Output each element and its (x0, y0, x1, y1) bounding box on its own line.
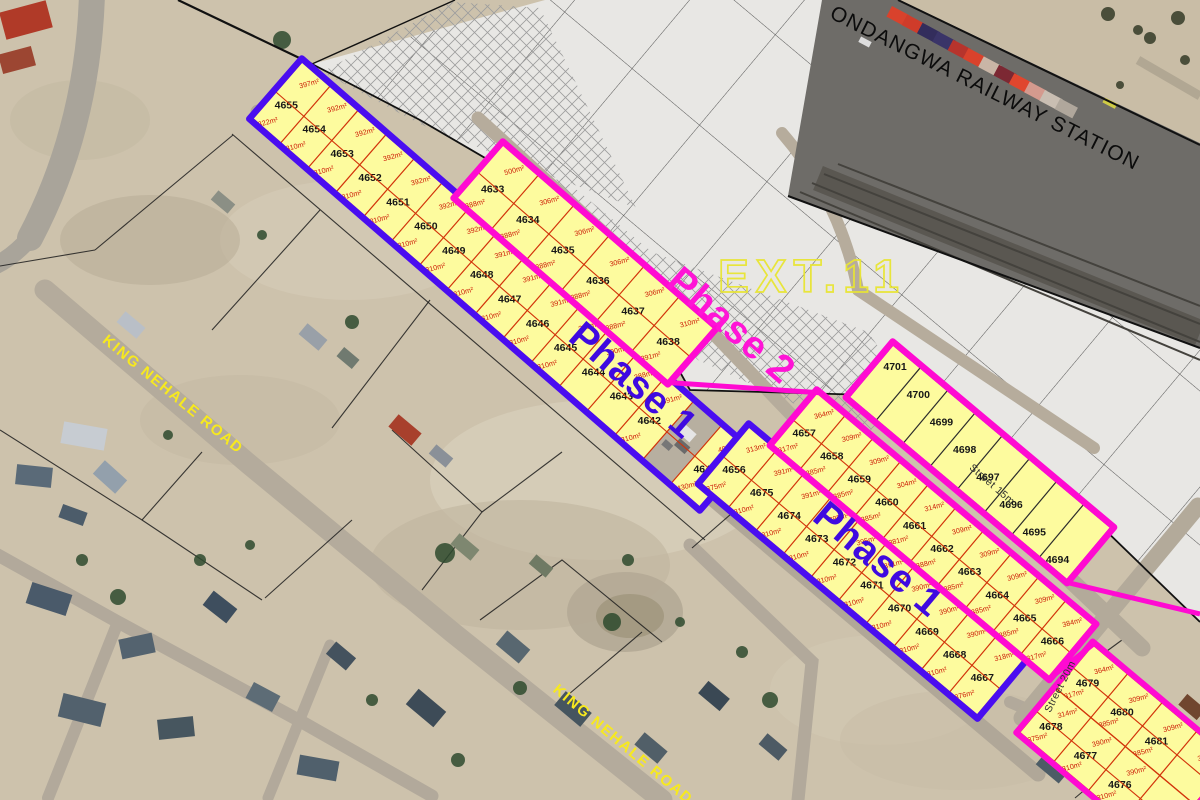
tree (513, 681, 527, 695)
bush (1144, 32, 1156, 44)
tree (675, 617, 685, 627)
bush (1101, 7, 1115, 21)
map-canvas: 4655397m²322m²4654392m²310m²4653392m²310… (0, 0, 1200, 800)
tree (622, 554, 634, 566)
terrain-patch (60, 195, 240, 285)
tree (194, 554, 206, 566)
tree (163, 430, 173, 440)
tree (435, 543, 455, 563)
tree (603, 613, 621, 631)
tree (451, 753, 465, 767)
plot-number: 4698 (953, 444, 977, 456)
tree (245, 540, 255, 550)
label-ext11: EXT.11 (718, 250, 906, 302)
plot-number: 4701 (883, 361, 907, 373)
tree (76, 554, 88, 566)
plot-number: 4695 (1023, 527, 1047, 539)
bush (1171, 11, 1185, 25)
tree (257, 230, 267, 240)
satellite-map: 4655397m²322m²4654392m²310m²4653392m²310… (0, 0, 1200, 800)
house-roof (157, 716, 195, 740)
plot-number: 4700 (907, 389, 931, 401)
house-roof (15, 464, 53, 488)
plot-number: 4699 (930, 416, 954, 428)
bush (1116, 81, 1124, 89)
bush (1180, 55, 1190, 65)
tree (366, 694, 378, 706)
tree (110, 589, 126, 605)
tree (736, 646, 748, 658)
tree (345, 315, 359, 329)
bush (1133, 25, 1143, 35)
tree (762, 692, 778, 708)
